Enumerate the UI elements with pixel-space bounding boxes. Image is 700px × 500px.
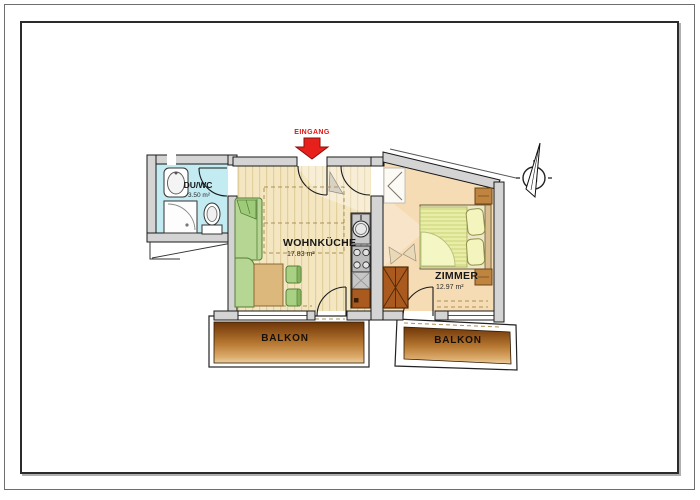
- zimmer-area: 12.97 m²: [436, 284, 464, 291]
- nightstand-top: [475, 188, 492, 204]
- dining-table: [254, 264, 283, 306]
- pillow-2: [466, 238, 485, 265]
- shower-symbol: [164, 201, 197, 233]
- kitchen-cabinet-top: [352, 272, 370, 289]
- window-zimmer: [448, 311, 494, 320]
- wall-shaft-gap: [167, 154, 176, 165]
- building-outline-stub: [150, 242, 180, 259]
- pillow-1: [466, 208, 486, 236]
- bench: [235, 258, 254, 307]
- bed-headboard: [485, 205, 491, 269]
- north-compass-icon: N: [516, 143, 552, 197]
- balcony-left-label: BALKON: [261, 333, 309, 344]
- wardrobe: [383, 267, 408, 308]
- stove-symbol: [352, 246, 370, 272]
- chair-1: [286, 266, 301, 283]
- balcony-right: BALKON: [395, 319, 517, 370]
- kitchen-counter: [351, 213, 371, 308]
- duwc-label: DU/WC: [184, 180, 213, 190]
- entrance-marker: EINGANG: [294, 129, 330, 159]
- kitchen-cabinet-bottom: [352, 289, 370, 308]
- floor-plan: BALKON BALKON: [0, 0, 700, 500]
- zimmer-label: ZIMMER: [435, 270, 478, 282]
- daybed: [235, 198, 262, 260]
- entrance-label: EINGANG: [294, 129, 330, 136]
- balcony-left: BALKON: [209, 316, 369, 367]
- entrance-arrow-icon: [296, 138, 328, 159]
- window-wohnkueche: [238, 311, 307, 320]
- building-outline-diagonal: [152, 243, 232, 258]
- chair-2: [286, 289, 301, 306]
- wohnkueche-area: 17.83 m²: [287, 251, 315, 258]
- zimmer-door-niche: [384, 168, 405, 203]
- balcony-right-label: BALKON: [434, 335, 482, 346]
- toilet-symbol: [202, 203, 222, 234]
- bed: [420, 205, 491, 269]
- wohnkueche-label: WOHNKÜCHE: [283, 236, 356, 249]
- duwc-area: 3.50 m²: [188, 192, 211, 199]
